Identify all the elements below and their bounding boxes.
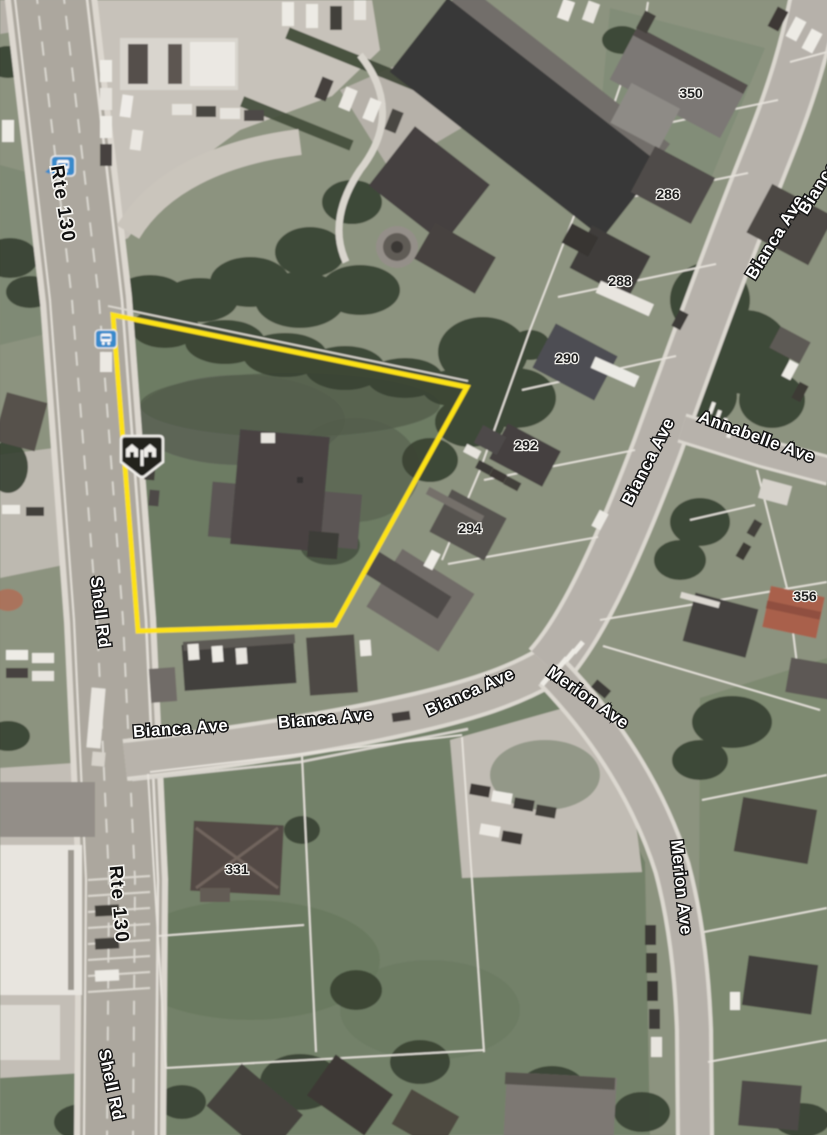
house-number-288: 288 bbox=[608, 273, 632, 289]
aerial-photo-layer bbox=[0, 0, 827, 1135]
scan-tint-overlay bbox=[0, 0, 827, 1135]
satellite-map: Rte 130 Rte 130 Shell Rd Shell Rd Bianca… bbox=[0, 0, 827, 1135]
house-number-356: 356 bbox=[793, 588, 817, 604]
house-number-294: 294 bbox=[458, 520, 482, 536]
house-number-292: 292 bbox=[514, 437, 538, 453]
house-number-286: 286 bbox=[656, 186, 680, 202]
house-number-350: 350 bbox=[679, 85, 703, 101]
house-number-331: 331 bbox=[225, 861, 249, 877]
house-number-290: 290 bbox=[555, 350, 579, 366]
